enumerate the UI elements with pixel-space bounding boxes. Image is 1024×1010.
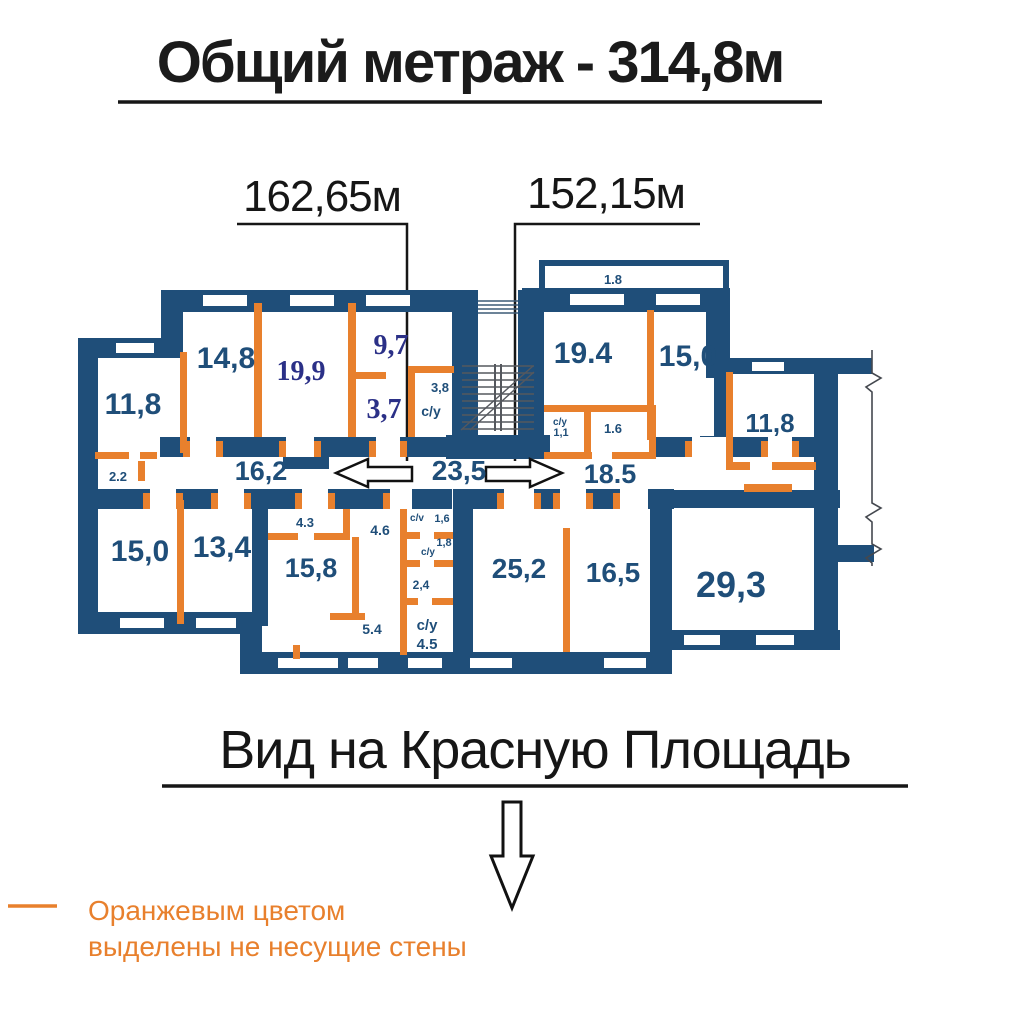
room-label: 9,7	[374, 330, 409, 361]
page-title: Общий метраж - 314,8м	[157, 30, 784, 95]
legend-text-line1: Оранжевым цветом	[88, 895, 345, 926]
room-label: 3,8	[431, 380, 449, 395]
room-label: 23,5	[432, 455, 487, 486]
room-label: 14,8	[197, 342, 255, 375]
room-labels: 11,8 14,8 19,9 9,7 3,7 3,8 с/у 2.2 16,2 …	[105, 272, 795, 653]
left-wing-area-label: 162,65м	[243, 172, 401, 221]
room-label: 29,3	[696, 564, 766, 605]
room-label: 11,8	[105, 388, 162, 421]
room-label: 18.5	[584, 459, 637, 489]
room-label: 15,0	[659, 340, 717, 373]
legend: Оранжевым цветом выделены не несущие сте…	[8, 895, 467, 962]
room-label: 1,8	[436, 537, 451, 549]
room-label: 13,4	[193, 531, 252, 564]
room-label: 15,8	[285, 553, 338, 583]
balcony-width-label: 1.8	[604, 272, 622, 287]
entry-arrow-left	[336, 459, 412, 487]
room-label: 2.2	[109, 469, 127, 484]
room-label: 1,1	[553, 427, 568, 439]
room-label: 1,6	[434, 513, 449, 525]
legend-text-line2: выделены не несущие стены	[88, 931, 467, 962]
room-label: с/у	[421, 403, 441, 419]
room-label: 3,7	[367, 394, 402, 425]
view-direction-arrow	[491, 802, 533, 908]
room-label: с/v	[410, 513, 424, 524]
right-wing-area-label: 152,15м	[527, 169, 685, 218]
room-label: с/у	[421, 547, 435, 558]
room-label: 16,2	[235, 456, 288, 486]
view-caption: Вид на Красную Площадь	[219, 720, 850, 780]
room-label: 2,4	[413, 578, 430, 592]
room-label: 4.3	[296, 515, 314, 530]
room-label: 4.6	[370, 522, 390, 538]
room-label: с/у	[417, 617, 439, 634]
room-label: 5.4	[362, 621, 382, 637]
floor-plan-page: Общий метраж - 314,8м 162,65м 152,15м	[0, 0, 1024, 1010]
room-label: 1.6	[604, 421, 622, 436]
floor-plan: 11,8 14,8 19,9 9,7 3,7 3,8 с/у 2.2 16,2 …	[78, 263, 881, 674]
room-label: 15,0	[111, 535, 169, 568]
floor-plan-canvas: Общий метраж - 314,8м 162,65м 152,15м	[0, 0, 1024, 1010]
room-label: 19.4	[554, 337, 613, 370]
balcony-break-line	[866, 350, 881, 566]
stair-entry-lines	[478, 301, 518, 313]
room-label: 4.5	[417, 636, 438, 653]
room-label: 16,5	[586, 557, 641, 588]
room-label: 19,9	[277, 356, 326, 387]
room-label: 25,2	[492, 553, 547, 584]
entry-arrow-right	[486, 459, 562, 487]
room-label: 11,8	[745, 408, 794, 438]
